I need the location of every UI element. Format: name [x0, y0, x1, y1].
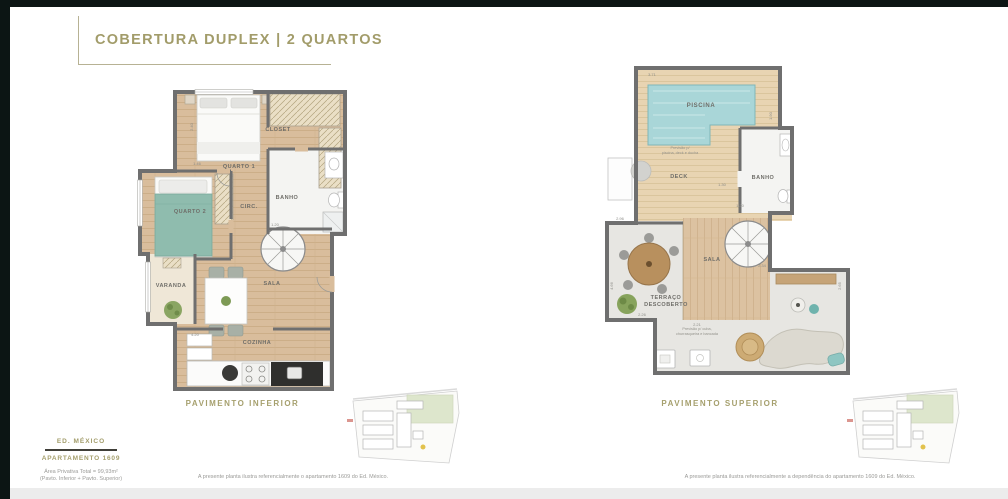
- private-area-line2: (Pavto. Inferior + Pavto. Superior): [26, 476, 136, 483]
- room-label-quarto1: QUARTO 1: [223, 164, 255, 170]
- caption-pavimento-superior: PAVIMENTO SUPERIOR: [600, 399, 840, 408]
- site-plan-thumbnail-superior: [845, 383, 965, 467]
- private-area-line1: Área Privativa Total = 99,93m²: [26, 469, 136, 476]
- bed-icon: [185, 95, 272, 161]
- room-label-sala2: SALA: [704, 257, 721, 263]
- site-plan-thumbnail-inferior: [345, 383, 465, 467]
- unit-info-block: ED. MÉXICO APARTAMENTO 1609 Área Privati…: [26, 438, 136, 483]
- room-label-piscina: PISCINA: [687, 103, 716, 109]
- room-label-closet: CLOSET: [265, 127, 290, 133]
- caption-pavimento-inferior: PAVIMENTO INFERIOR: [135, 399, 350, 408]
- dim-label: 4.66: [609, 281, 614, 290]
- room-label-deck: DECK: [670, 174, 688, 180]
- sideboard-icon: [776, 274, 836, 284]
- divider-line: [45, 449, 117, 451]
- note-bbq-line1: Previsão p/ cuba,: [682, 327, 711, 331]
- floor-plan-superior: PISCINA Previsão p/ piscina, deck e duch…: [600, 58, 880, 388]
- dim-label: 4.20: [191, 332, 200, 337]
- dim-label: 2.96: [616, 216, 625, 221]
- room-label-varanda: VARANDA: [156, 283, 187, 289]
- dim-label: 1.30: [718, 182, 727, 187]
- dim-label: 2.40: [189, 122, 194, 131]
- top-dark-strip: [0, 0, 1008, 7]
- dim-label: 1.90: [768, 111, 773, 120]
- room-label-circ: CIRC.: [240, 204, 257, 210]
- room-label-banho2: BANHO: [752, 175, 775, 181]
- room-label-banho: BANHO: [276, 195, 299, 201]
- bottom-grey-bar: [10, 488, 1008, 499]
- left-dark-strip: [0, 0, 10, 499]
- room-label-sala: SALA: [264, 281, 281, 287]
- spiral-stair2-icon: [725, 221, 771, 267]
- page-title: COBERTURA DUPLEX | 2 QUARTOS: [95, 32, 383, 48]
- note-bbq-line2: churrasqueira e bancada: [676, 332, 719, 336]
- dim-label: 2.21: [693, 322, 702, 327]
- building-name: ED. MÉXICO: [26, 438, 136, 445]
- note-pool-line1: Previsão p/: [671, 146, 691, 150]
- brochure-page: COBERTURA DUPLEX | 2 QUARTOS: [0, 0, 1008, 499]
- dim-label: 1.20: [271, 222, 280, 227]
- disclaimer-inferior: A presente planta ilustra referencialmen…: [178, 474, 408, 480]
- bed2-icon: [155, 177, 212, 257]
- dim-label: 3.71: [648, 72, 657, 77]
- dim-label: 2.65: [837, 281, 842, 290]
- room-label-cozinha: COZINHA: [243, 340, 272, 346]
- terrace-plant-icon: [617, 294, 637, 314]
- room-label-quarto2: QUARTO 2: [174, 209, 206, 215]
- apartment-number: APARTAMENTO 1609: [26, 455, 136, 462]
- dim-label: 2.34: [758, 263, 767, 268]
- dim-label: 2.26: [638, 312, 647, 317]
- door-opening: [738, 171, 743, 187]
- dim-label: 1.46: [193, 161, 202, 166]
- room-label-terraco-2: DESCOBERTO: [644, 302, 688, 308]
- floor-plan-inferior: QUARTO 1 CLOSET BANHO CIRC. QUARTO 2 VAR…: [135, 82, 350, 394]
- disclaimer-superior: A presente planta ilustra referencialmen…: [655, 474, 945, 480]
- dim-label: 1.20: [736, 203, 745, 208]
- room-label-terraco-1: TERRAÇO: [651, 295, 682, 301]
- note-pool-line2: piscina, deck e ducha: [662, 151, 699, 155]
- rattan-chair-icon: [736, 333, 764, 361]
